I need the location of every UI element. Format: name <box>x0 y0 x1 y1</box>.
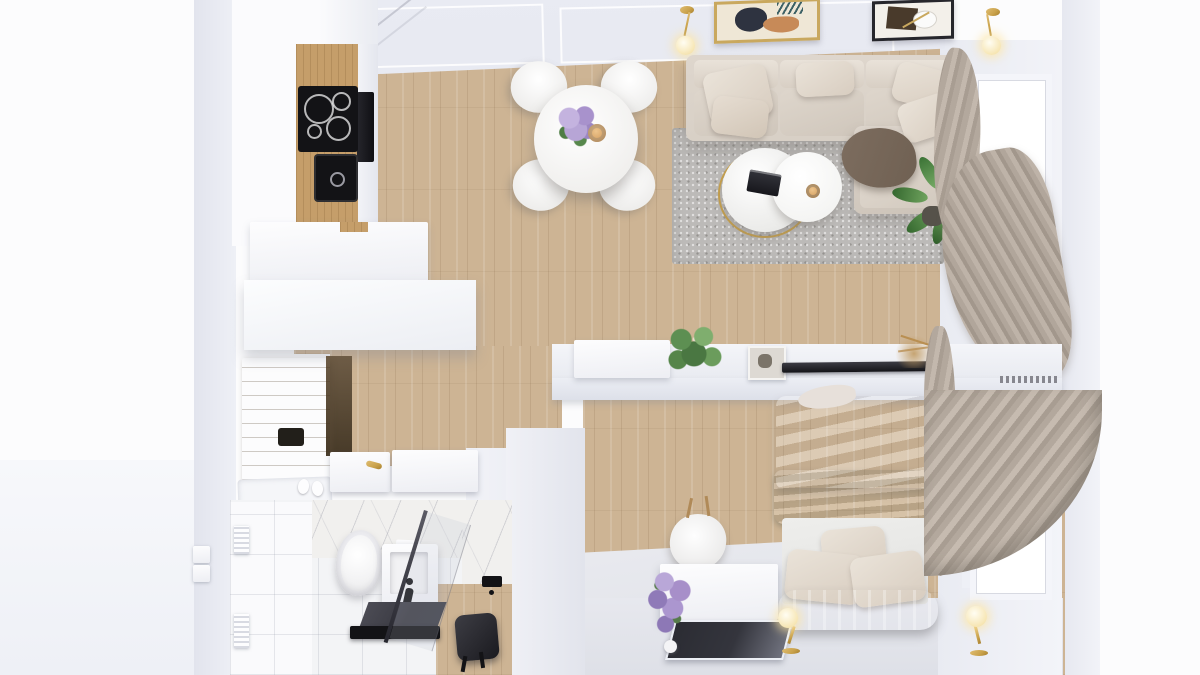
sofa-seat-cushion <box>780 90 864 136</box>
frame-print <box>758 354 772 368</box>
kitchen-sink <box>314 154 358 202</box>
exterior-ground <box>0 460 196 675</box>
sofa-pillow <box>710 95 770 140</box>
bedside-lamp-right <box>962 606 996 656</box>
fittonia-plant <box>662 322 726 380</box>
wall-artwork-1 <box>714 0 820 44</box>
vase <box>664 640 677 653</box>
lamp-globe <box>778 608 798 628</box>
sconce-arm <box>986 14 992 36</box>
sage-throw <box>774 470 934 524</box>
candle-holder <box>588 124 606 142</box>
art-shape-orange <box>763 16 799 33</box>
sconce-base-disc <box>680 6 694 14</box>
sofa-pillow <box>795 61 855 98</box>
lamp-stem <box>974 626 981 644</box>
black-stool <box>454 612 500 661</box>
light-switch <box>193 565 210 582</box>
console-cabinet <box>574 340 670 378</box>
monstera-leaf <box>891 185 929 205</box>
shower-head <box>482 576 502 587</box>
induction-cooktop <box>298 86 358 152</box>
interior-door-leaf <box>330 452 390 492</box>
sconce-right <box>976 8 1002 56</box>
entry-door-handle <box>278 428 304 446</box>
burner-ring <box>326 116 351 141</box>
kitchen-island-upper <box>250 222 428 282</box>
lamp-base <box>970 650 988 656</box>
lilac-bouquet <box>642 566 698 654</box>
shower-control <box>489 590 494 595</box>
sconce-globe <box>982 36 1001 55</box>
light-switch <box>193 546 210 563</box>
candle-cup <box>806 184 820 198</box>
picture-frame <box>748 346 786 380</box>
sconce-arm <box>684 12 691 36</box>
wall-bathroom-bedroom <box>506 428 585 675</box>
curtain-rail <box>1000 376 1058 383</box>
wall-oven <box>357 92 374 162</box>
lamp-globe <box>966 606 987 627</box>
lamp-base <box>782 648 800 654</box>
bedside-lamp-left <box>778 606 808 654</box>
sconce-globe <box>676 36 695 55</box>
wall-vent <box>234 526 249 554</box>
interior-door-leaf <box>392 450 478 492</box>
entry-door <box>242 358 330 480</box>
island-wood-sliver <box>340 222 368 232</box>
sconce-left <box>674 6 700 56</box>
lamp-stem <box>787 626 795 644</box>
wall-artwork-2 <box>872 0 954 41</box>
wall-vent <box>234 614 249 648</box>
kitchen-island-lower <box>244 280 476 350</box>
art-shape-leaves <box>777 2 803 15</box>
burner-ring <box>307 124 322 139</box>
art-shape-dark <box>735 7 767 32</box>
apartment-render <box>0 0 1200 675</box>
burner-ring <box>332 92 351 111</box>
sink-drain <box>330 172 345 187</box>
